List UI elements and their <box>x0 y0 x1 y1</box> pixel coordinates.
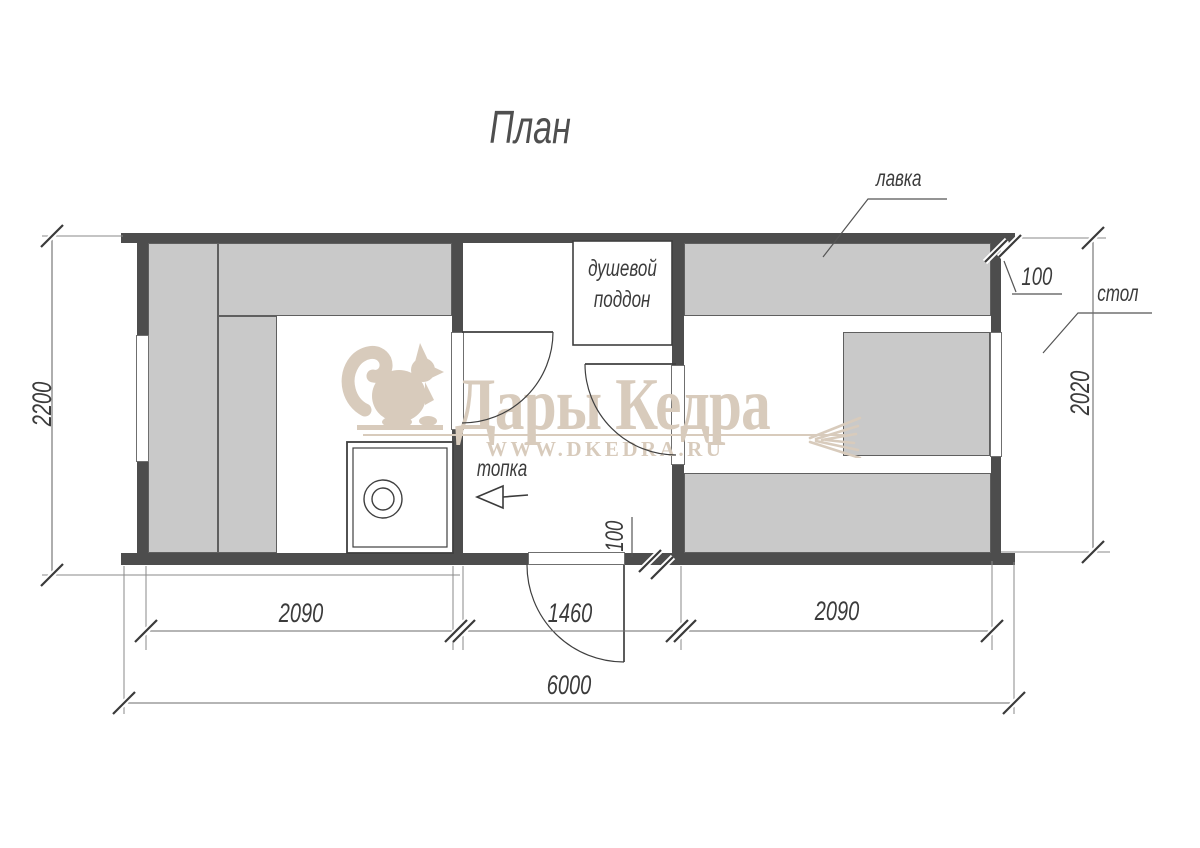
door-rest <box>585 364 676 455</box>
firebox-label: топка <box>468 455 536 482</box>
dim-rest-room-depth: 2020 <box>1067 341 1093 445</box>
dim-total-width: 6000 <box>519 670 619 701</box>
dim-rest-room-width: 2090 <box>787 596 887 627</box>
door-sauna <box>462 332 553 423</box>
dim-wall-100-middle: 100 <box>600 513 630 559</box>
dim-washroom-width: 1460 <box>520 598 620 629</box>
dim-wall-100-right: 100 <box>1010 263 1064 292</box>
dim-total-depth: 2200 <box>29 352 55 456</box>
table-label: стол <box>1090 280 1146 307</box>
stove <box>347 442 453 553</box>
drawing-title: План <box>455 100 605 154</box>
shower-tray-label-line1: душевой <box>573 255 672 282</box>
bench-label: лавка <box>868 165 929 192</box>
dim-steam-room-width: 2090 <box>251 598 351 629</box>
floor-plan-drawing: Дары Кедра WWW.DKEDRA.RU <box>0 0 1200 848</box>
shower-tray-label-line2: поддон <box>573 286 672 313</box>
firebox-arrow-icon <box>477 486 528 508</box>
